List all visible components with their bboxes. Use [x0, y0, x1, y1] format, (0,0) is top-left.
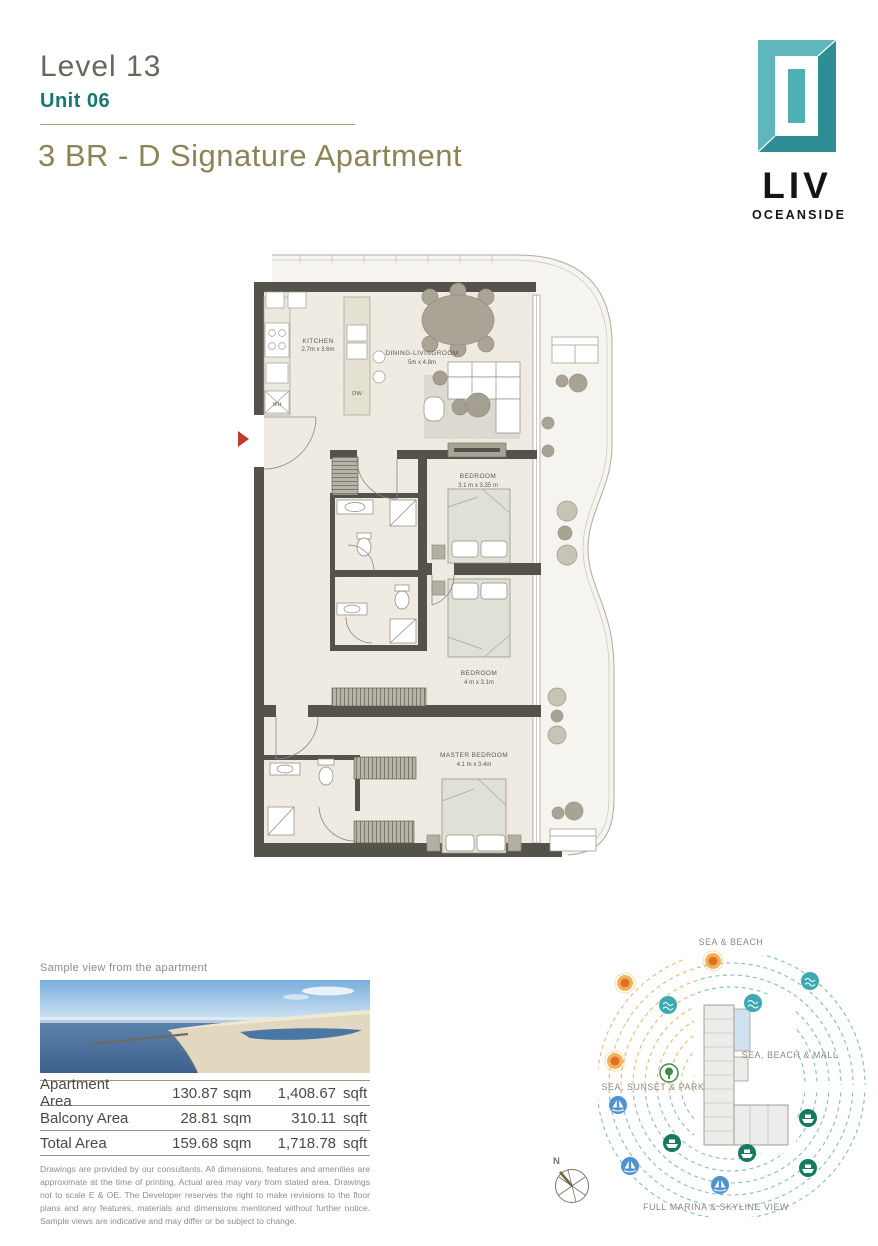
table-row: Total Area 159.68 sqm 1,718.78 sqft [40, 1131, 370, 1156]
kitchen-label: KITCHEN [302, 338, 333, 345]
sqm-value: 130.87 [144, 1085, 218, 1102]
water-icon [744, 994, 762, 1012]
sailboat-icon [711, 1176, 729, 1194]
logo-subtitle-text: OCEANSIDE [752, 208, 842, 222]
kitchen-dims: 2.7m x 3.6m [301, 347, 334, 353]
building-pool [734, 1009, 750, 1051]
dishwasher-label: DW [352, 391, 362, 397]
living-label: DINING-LIVINGROOM [385, 350, 458, 357]
entrance-arrow-icon [238, 431, 249, 447]
sqft-value: 310.11 [258, 1110, 336, 1127]
header: Level 13 Unit 06 [40, 50, 161, 113]
sqft-unit: sqft [336, 1110, 370, 1127]
logo-brand-text: LIV [752, 165, 842, 207]
row-label: Total Area [40, 1135, 144, 1152]
table-row: Apartment Area 130.87 sqm 1,408.67 sqft [40, 1081, 370, 1106]
water-heater-label: WH [273, 402, 282, 408]
compass-icon: N [536, 1146, 606, 1216]
sqft-unit: sqft [336, 1085, 370, 1102]
building-footprint [694, 995, 796, 1153]
compass: N [536, 1146, 606, 1221]
water-icon [801, 972, 819, 990]
sqft-value: 1,408.67 [258, 1085, 336, 1102]
bedroom1-label: BEDROOM [460, 473, 496, 480]
map-label-sea-beach: SEA & BEACH [699, 937, 764, 947]
brochure-page: Level 13 Unit 06 3 BR - D Signature Apar… [0, 0, 878, 1246]
bedroom1-dims: 3.1 m x 3.35 m [458, 483, 498, 489]
yacht-icon [799, 1109, 817, 1127]
sqm-value: 28.81 [144, 1110, 218, 1127]
bedroom2-dims: 4 m x 3.1m [464, 680, 494, 686]
sailboat-icon [609, 1096, 627, 1114]
sun-icon [615, 973, 635, 993]
liv-logo-icon [758, 40, 836, 152]
yacht-icon [799, 1159, 817, 1177]
sailboat-icon [621, 1157, 639, 1175]
tree-icon [660, 1064, 678, 1082]
sqm-value: 159.68 [144, 1135, 218, 1152]
water-icon [659, 996, 677, 1014]
area-table: Apartment Area 130.87 sqm 1,408.67 sqft … [40, 1080, 370, 1156]
living-dims: 5m x 4.8m [408, 360, 436, 366]
summary-column: Sample view from the apartment [40, 962, 370, 1227]
table-row: Balcony Area 28.81 sqm 310.11 sqft [40, 1106, 370, 1131]
sqm-unit: sqm [218, 1135, 258, 1152]
header-divider [40, 124, 355, 125]
map-label-sea-sunset-park: SEA, SUNSET & PARK [602, 1082, 705, 1092]
yacht-icon [663, 1134, 681, 1152]
sun-icon [703, 951, 723, 971]
brand-logo: LIV OCEANSIDE [752, 40, 842, 222]
floor-plan: KITCHEN 2.7m x 3.6m DW WH DINING-LIVINGR… [236, 245, 632, 880]
sqm-unit: sqm [218, 1110, 258, 1127]
sun-icon [605, 1051, 625, 1071]
sqft-unit: sqft [336, 1135, 370, 1152]
row-label: Apartment Area [40, 1076, 144, 1110]
page-title: 3 BR - D Signature Apartment [38, 138, 462, 174]
master-bedroom-dims: 4.1 m x 3.4m [457, 762, 492, 768]
sample-view-caption: Sample view from the apartment [40, 962, 370, 974]
unit-label: Unit 06 [40, 90, 161, 113]
site-map-drawing: SEA & BEACH SEA, BEACH & MALL SEA, SUNSE… [598, 933, 868, 1233]
floor-plan-drawing: KITCHEN 2.7m x 3.6m DW WH DINING-LIVINGR… [236, 245, 632, 875]
master-bedroom-label: MASTER BEDROOM [440, 752, 508, 759]
row-label: Balcony Area [40, 1110, 144, 1127]
yacht-icon [738, 1144, 756, 1162]
sqm-unit: sqm [218, 1085, 258, 1102]
dining-table [422, 283, 494, 357]
site-map: SEA & BEACH SEA, BEACH & MALL SEA, SUNSE… [598, 933, 868, 1238]
level-label: Level 13 [40, 50, 161, 84]
bedroom2-label: BEDROOM [461, 670, 497, 677]
sqft-value: 1,718.78 [258, 1135, 336, 1152]
map-label-sea-beach-mall: SEA, BEACH & MALL [742, 1050, 839, 1060]
north-label: N [553, 1156, 560, 1167]
map-label-full-marina: FULL MARINA & SKYLINE VIEW [643, 1202, 789, 1212]
disclaimer-text: Drawings are provided by our consultants… [40, 1163, 370, 1227]
sample-view-photo [40, 980, 370, 1073]
